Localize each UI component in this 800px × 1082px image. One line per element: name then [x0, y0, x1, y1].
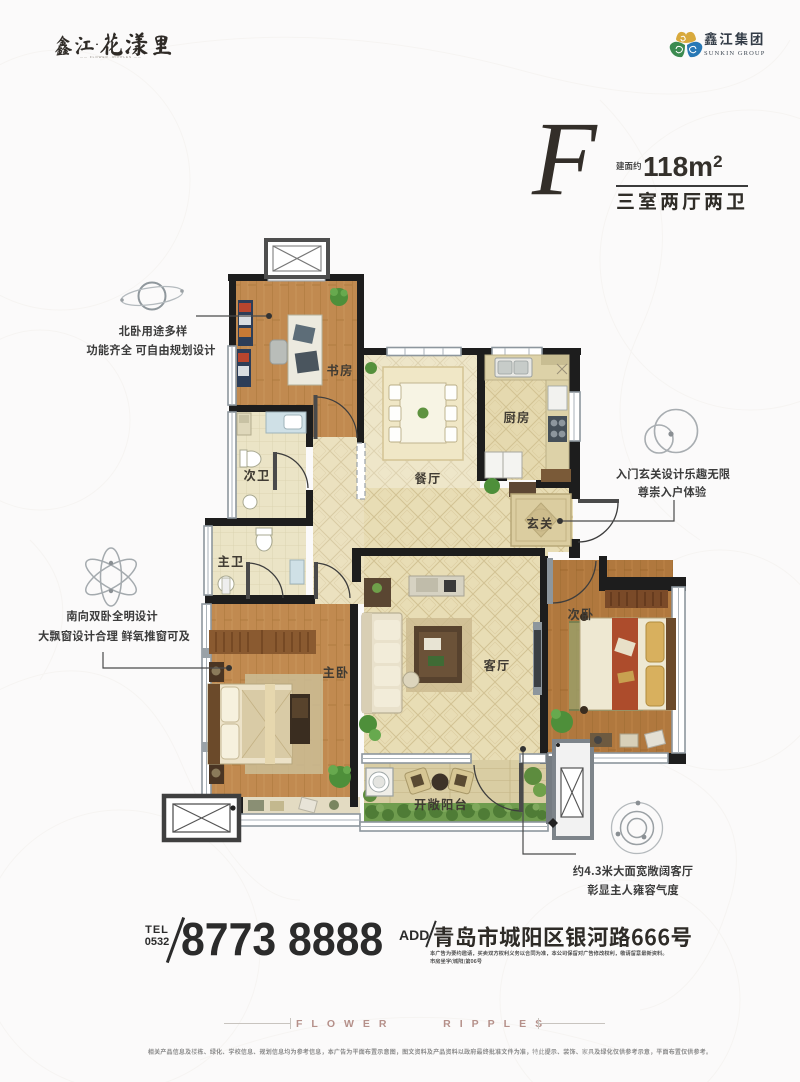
- svg-text:书房: 书房: [327, 361, 354, 379]
- svg-text:开敞阳台: 开敞阳台: [414, 795, 468, 813]
- svg-text:次卫: 次卫: [244, 466, 271, 484]
- svg-text:主卧: 主卧: [323, 663, 350, 681]
- svg-text:入门玄关设计乐趣无限: 入门玄关设计乐趣无限: [616, 466, 730, 482]
- svg-text:主卫: 主卫: [218, 552, 245, 570]
- svg-text:玄关: 玄关: [527, 514, 554, 532]
- svg-text:次卧: 次卧: [568, 605, 595, 623]
- svg-text:尊崇入户体验: 尊崇入户体验: [638, 484, 707, 500]
- svg-text:功能齐全 可自由规划设计: 功能齐全 可自由规划设计: [86, 342, 215, 358]
- svg-text:厨房: 厨房: [504, 408, 531, 426]
- svg-text:彰显主人雍容气度: 彰显主人雍容气度: [587, 882, 679, 898]
- svg-text:约4.3米大面宽敞阔客厅: 约4.3米大面宽敞阔客厅: [573, 863, 693, 879]
- svg-text:大飘窗设计合理 鲜氧推窗可及: 大飘窗设计合理 鲜氧推窗可及: [38, 628, 191, 644]
- svg-text:北卧用途多样: 北卧用途多样: [119, 323, 188, 339]
- svg-text:餐厅: 餐厅: [415, 469, 442, 487]
- svg-text:南向双卧全明设计: 南向双卧全明设计: [66, 608, 158, 624]
- svg-text:客厅: 客厅: [484, 656, 511, 674]
